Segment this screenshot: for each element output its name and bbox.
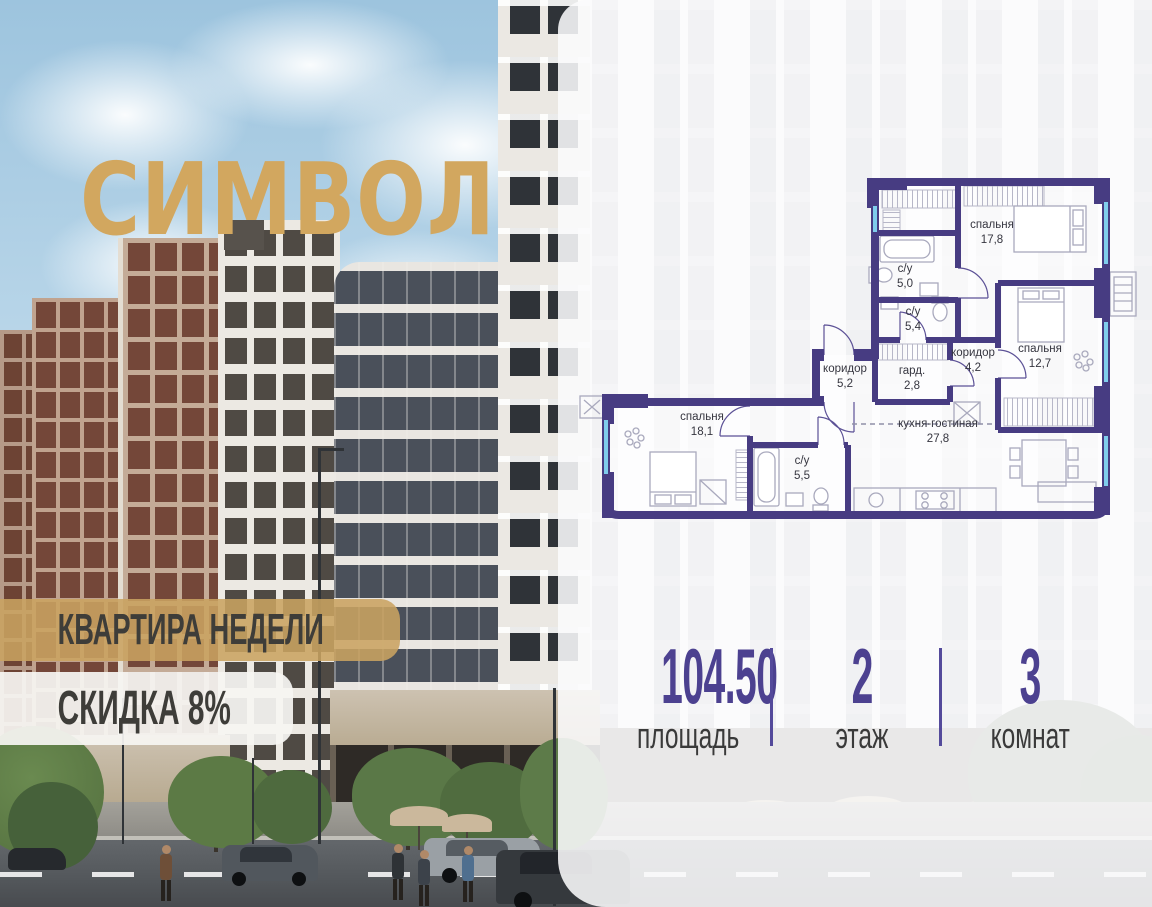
room-label: гард. [899,365,925,377]
room-area: 2,8 [904,380,920,392]
umbrella [442,814,492,832]
room-label: с/у [898,263,913,275]
stat-area-value: 104.50 [661,644,777,708]
room-label: спальня [1018,343,1062,355]
floorplan: спальня17,8с/у5,0с/у5,4коридор5,2гард.2,… [565,160,1150,530]
car-cabin [240,847,292,862]
room-area: 5,2 [837,378,853,390]
weekly-badge: КВАРТИРА НЕДЕЛИ [0,599,400,661]
stat-area-label: площадь [637,718,739,754]
room-label: спальня [680,411,724,423]
discount-badge-label: СКИДКА 8% [0,672,231,745]
stat-floor-value: 2 [851,644,872,708]
stat-floor: 2 этаж [787,644,937,754]
room-label: с/у [906,306,921,318]
room-area: 5,5 [794,470,810,482]
room-area: 27,8 [927,433,949,445]
pedestrian [160,845,172,901]
room-label: коридор [823,363,867,375]
room-area: 17,8 [981,234,1003,246]
pedestrian [418,850,430,906]
car-wheel [514,892,532,907]
car [8,848,66,870]
stat-divider [770,648,773,746]
room-label: коридор [951,347,995,359]
stat-divider [939,648,942,746]
room-label: спальня [970,219,1014,231]
car-wheel [232,872,246,886]
car-wheel [442,868,457,883]
stat-rooms: 3 комнат [955,644,1105,754]
room-label: кухня-гостиная [898,418,978,430]
discount-badge: СКИДКА 8% [0,672,293,745]
room-area: 4,2 [965,362,981,374]
room-area: 12,7 [1029,358,1051,370]
weekly-badge-label: КВАРТИРА НЕДЕЛИ [0,599,324,661]
street-lamp [252,758,254,844]
stat-rooms-value: 3 [1019,644,1040,708]
room-label: с/у [795,455,810,467]
pedestrian [392,844,404,900]
room-area: 5,0 [897,278,913,290]
room-area: 18,1 [691,426,713,438]
umbrella [390,806,448,826]
car-wheel [292,872,306,886]
stat-floor-label: этаж [836,718,889,754]
street-lamp-arm [318,448,344,451]
room-area: 5,4 [905,321,922,333]
brand-logo: СИМВОЛ [80,150,496,250]
stat-rooms-label: комнат [990,718,1069,754]
pedestrian [462,846,474,902]
promo-card: СИМВОЛ КВАРТИРА НЕДЕЛИ СКИДКА 8% [0,0,1152,907]
stat-area: 104.50 площадь [603,644,773,754]
